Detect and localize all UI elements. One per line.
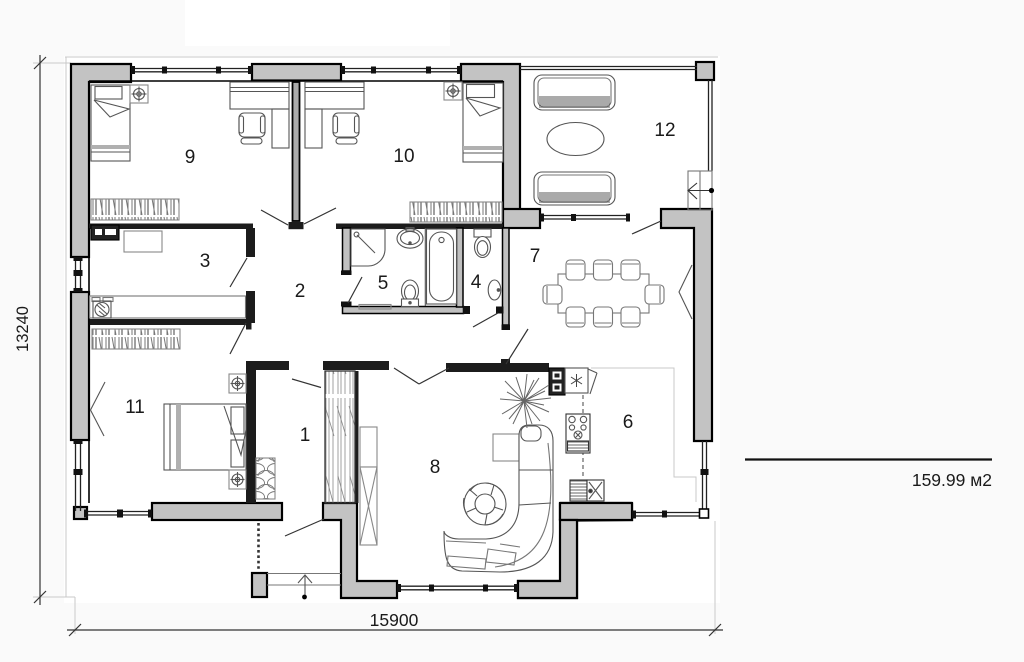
svg-text:11: 11 xyxy=(125,397,145,418)
svg-text:6: 6 xyxy=(623,412,634,433)
svg-text:13240: 13240 xyxy=(14,306,32,352)
svg-text:5: 5 xyxy=(378,273,389,294)
svg-text:10: 10 xyxy=(393,146,414,167)
svg-text:12: 12 xyxy=(654,120,675,141)
svg-text:8: 8 xyxy=(430,457,441,478)
svg-text:7: 7 xyxy=(530,246,541,267)
svg-text:1: 1 xyxy=(300,425,311,446)
svg-text:15900: 15900 xyxy=(370,610,419,630)
svg-text:9: 9 xyxy=(185,147,196,168)
svg-text:4: 4 xyxy=(471,272,482,293)
svg-text:2: 2 xyxy=(295,281,306,302)
svg-text:159.99 м2: 159.99 м2 xyxy=(912,470,992,490)
svg-text:3: 3 xyxy=(200,251,211,272)
